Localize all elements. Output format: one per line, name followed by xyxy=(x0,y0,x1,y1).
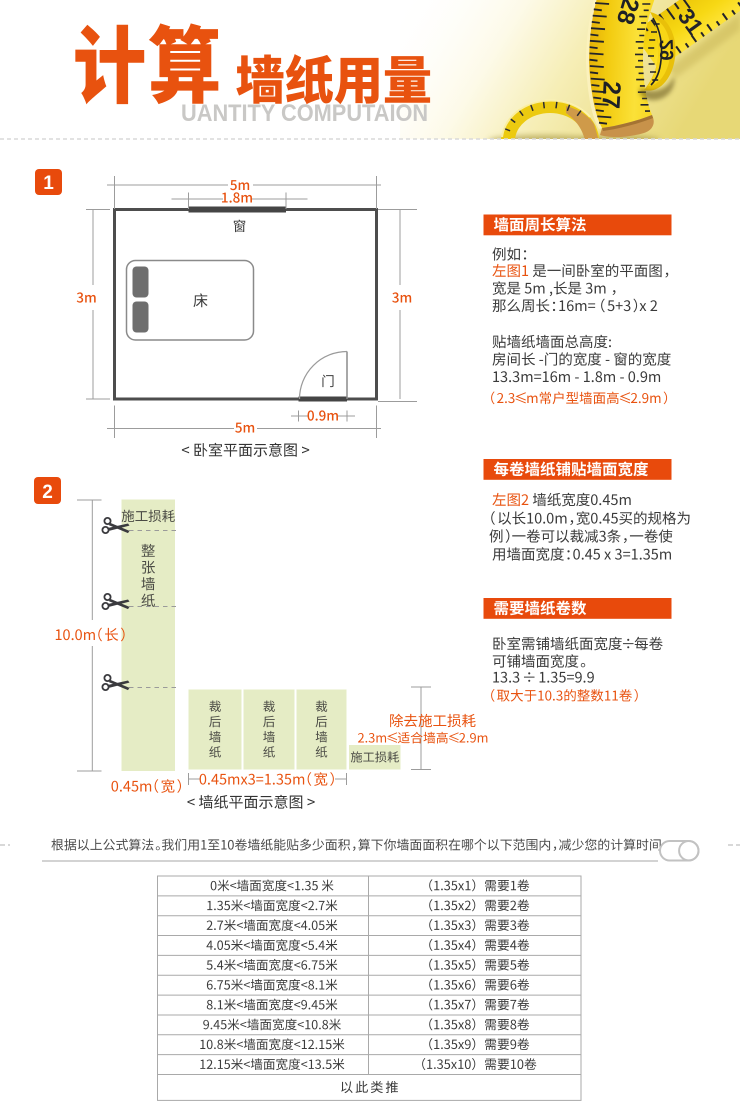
svg-text:2: 2 xyxy=(42,482,53,503)
svg-text:27: 27 xyxy=(596,80,625,109)
svg-text:UANTITY COMPUTAION: UANTITY COMPUTAION xyxy=(181,99,428,126)
svg-text:1: 1 xyxy=(43,173,54,194)
svg-text:29: 29 xyxy=(657,39,679,61)
